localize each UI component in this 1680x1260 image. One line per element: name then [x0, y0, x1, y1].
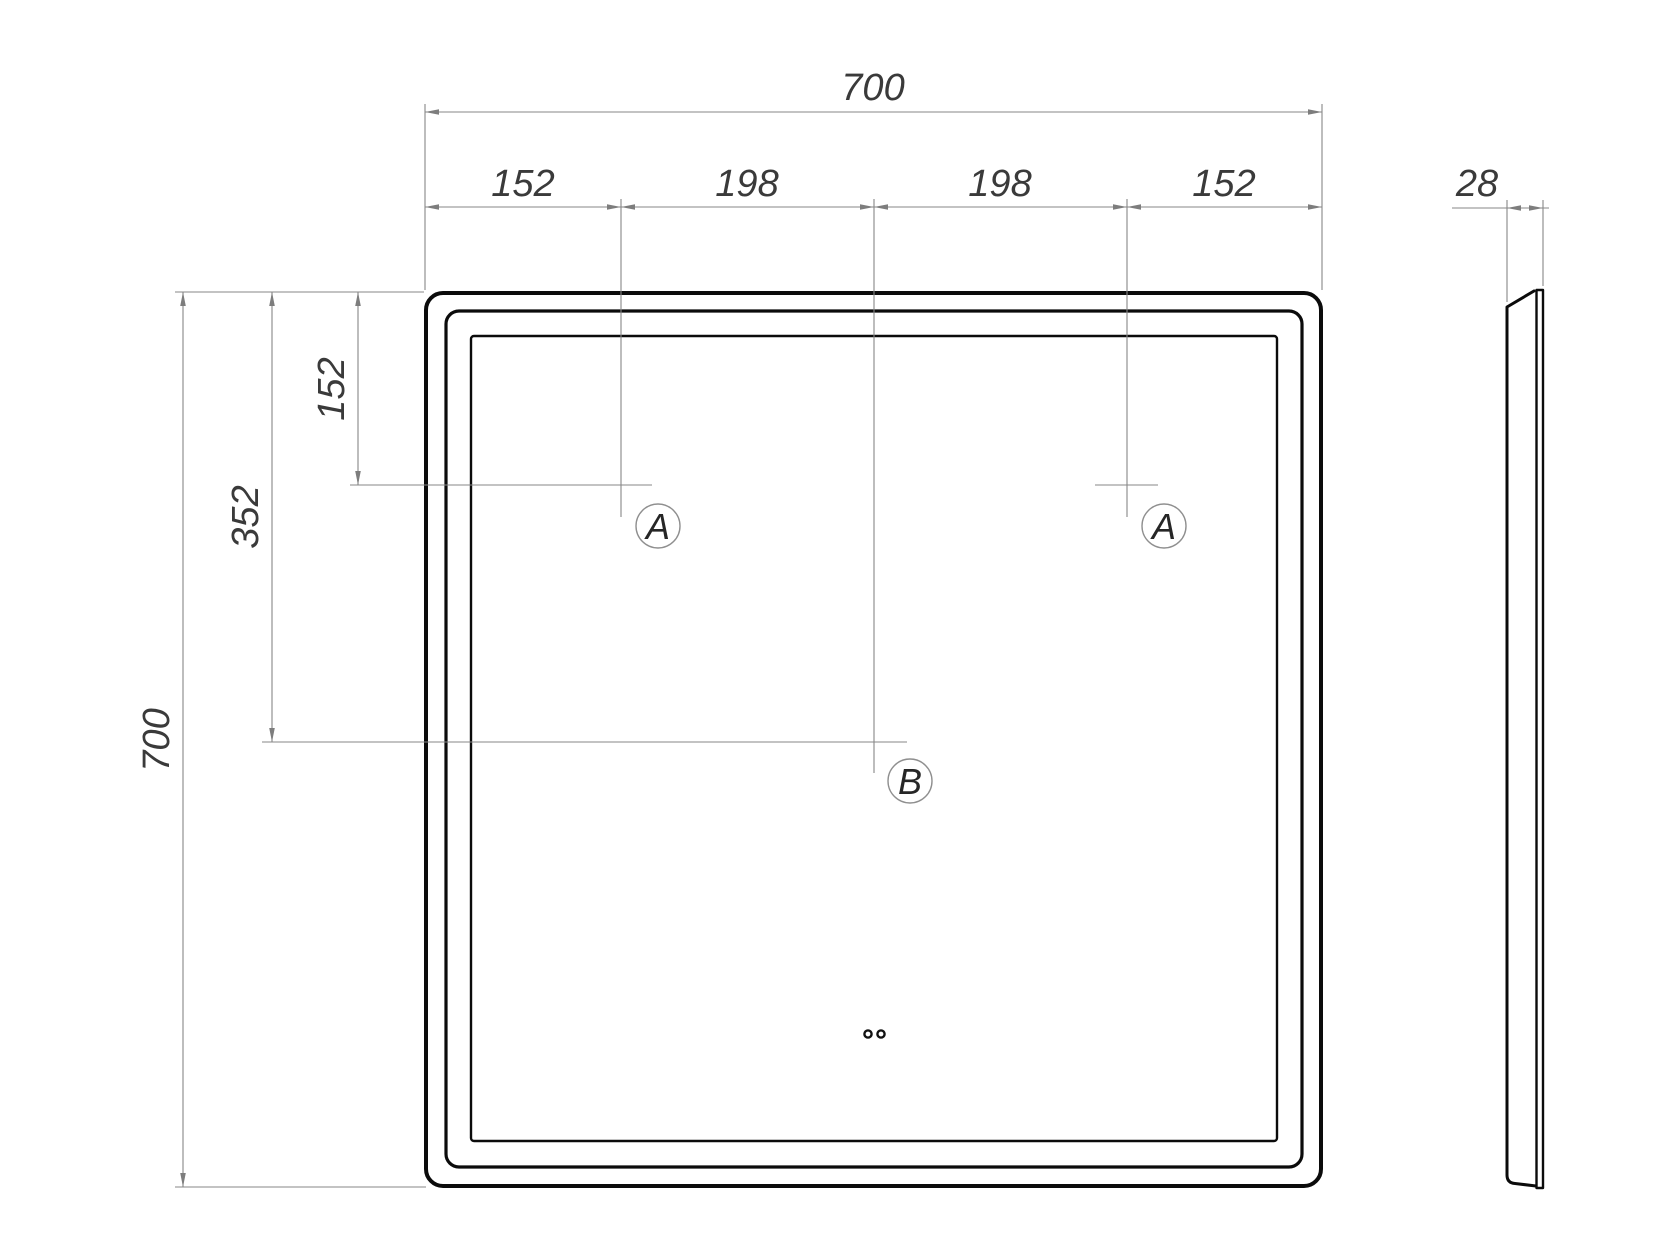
dimension-arrowheads	[180, 109, 1543, 1187]
dim-label-left-mid: 352	[225, 485, 267, 548]
touch-sensor-dot-left	[864, 1030, 871, 1037]
hole-callout-a-right-letter: A	[1150, 506, 1176, 547]
dim-label-left-total: 700	[136, 708, 178, 771]
dim-label-seg-1: 152	[491, 163, 554, 205]
touch-sensor-dots	[864, 1030, 884, 1037]
side-view	[1507, 290, 1543, 1188]
dimension-lines	[175, 104, 1549, 1187]
dim-label-left-hole: 152	[311, 357, 353, 420]
technical-drawing-page: 700 152 198 198 152 152 352 700 28 A A B	[0, 0, 1680, 1260]
hole-callout-a-left-letter: A	[644, 506, 670, 547]
touch-sensor-dot-right	[877, 1030, 884, 1037]
hole-callout-a-right: A	[1142, 504, 1186, 548]
dimension-labels: 700 152 198 198 152 152 352 700 28	[136, 67, 1498, 772]
dim-label-seg-3: 198	[968, 163, 1031, 205]
dim-label-top-total: 700	[841, 67, 904, 109]
hole-callout-b: B	[888, 759, 932, 803]
side-view-glass-outline	[1537, 290, 1544, 1188]
hole-callouts: A A B	[636, 504, 1186, 803]
hole-callout-b-letter: B	[898, 761, 922, 802]
mirror-dimension-drawing: 700 152 198 198 152 152 352 700 28 A A B	[0, 0, 1680, 1260]
dim-label-seg-4: 152	[1192, 163, 1255, 205]
dim-label-side-thickness: 28	[1455, 163, 1498, 205]
side-view-body-outline	[1507, 291, 1536, 1186]
dim-label-seg-2: 198	[715, 163, 778, 205]
hole-callout-a-left: A	[636, 504, 680, 548]
